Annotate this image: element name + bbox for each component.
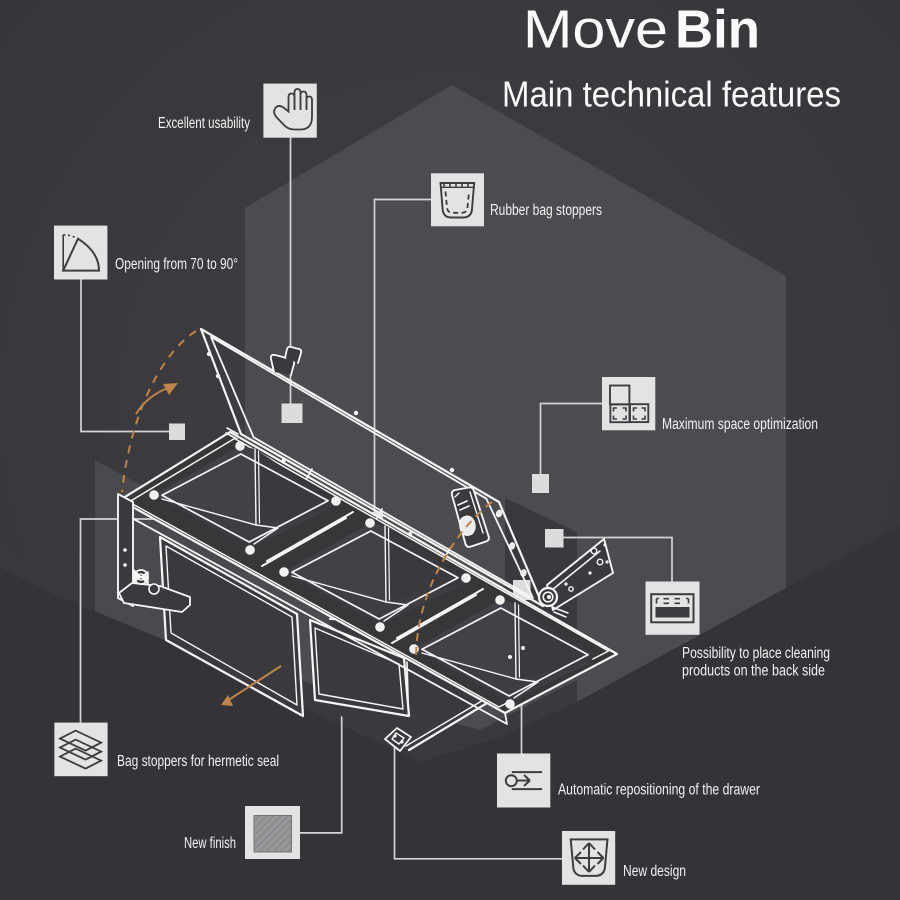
svg-text:Possibility to place cleaning: Possibility to place cleaning [682,645,830,662]
svg-text:Maximum space optimization: Maximum space optimization [662,416,818,433]
svg-text:products on the back side: products on the back side [682,663,825,680]
svg-text:Rubber bag stoppers: Rubber bag stoppers [490,202,602,219]
svg-text:Excellent usability: Excellent usability [158,115,250,132]
svg-text:Bin: Bin [675,0,760,60]
svg-text:Bag stoppers for hermetic seal: Bag stoppers for hermetic seal [117,753,279,770]
svg-text:Automatic repositioning of the: Automatic repositioning of the drawer [558,782,760,799]
svg-text:Opening from 70 to 90°: Opening from 70 to 90° [115,256,238,273]
svg-text:Main technical features: Main technical features [502,74,841,115]
svg-text:Move: Move [523,0,668,60]
svg-text:New design: New design [623,863,686,880]
svg-text:New finish: New finish [184,835,236,852]
